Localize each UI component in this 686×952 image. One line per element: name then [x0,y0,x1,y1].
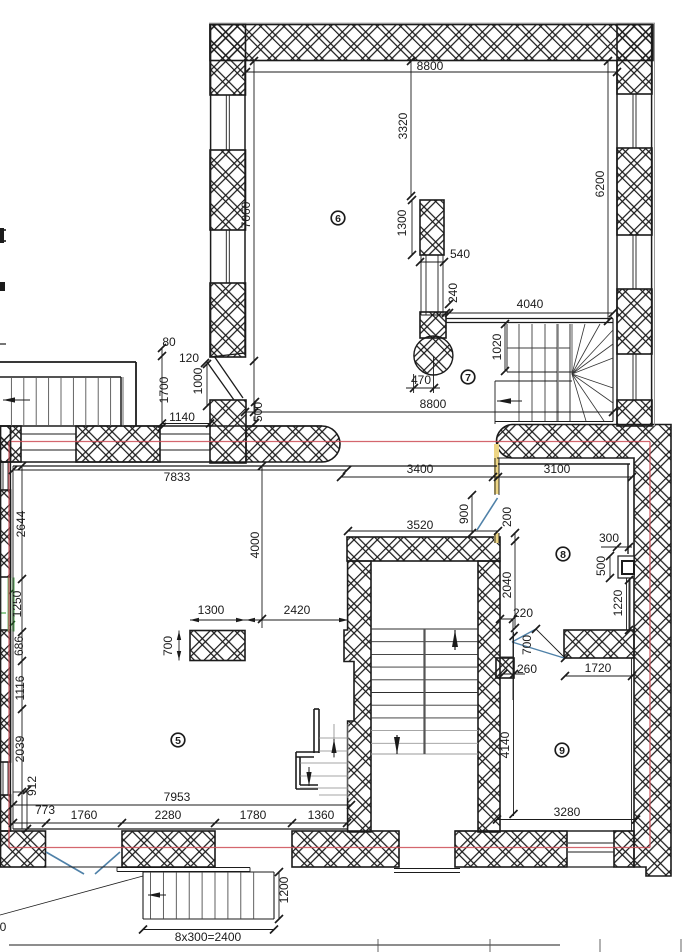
svg-text:2039: 2039 [13,735,27,762]
svg-text:4140: 4140 [498,731,512,758]
svg-text:2420: 2420 [284,603,311,617]
svg-text:9: 9 [559,745,565,757]
svg-text:3280: 3280 [554,805,581,819]
svg-text:2280: 2280 [155,808,182,822]
svg-text:686: 686 [12,636,26,656]
svg-text:1360: 1360 [308,808,335,822]
svg-text:3520: 3520 [407,518,434,532]
svg-text:540: 540 [450,247,470,261]
svg-text:200: 200 [500,507,514,527]
svg-text:470: 470 [411,373,431,387]
svg-text:8x300=2400: 8x300=2400 [175,930,242,944]
svg-text:4000: 4000 [248,531,262,558]
svg-text:1760: 1760 [71,808,98,822]
svg-text:120: 120 [179,351,199,365]
svg-text:6: 6 [335,213,341,225]
svg-text:6200: 6200 [593,170,607,197]
svg-text:1020: 1020 [490,333,504,360]
svg-text:3100: 3100 [544,462,571,476]
svg-text:1250: 1250 [10,590,24,617]
svg-text:220: 220 [513,606,533,620]
svg-text:4040: 4040 [517,297,544,311]
svg-text:2644: 2644 [14,510,28,537]
svg-text:7: 7 [465,372,471,384]
svg-text:300: 300 [599,531,619,545]
svg-text:773: 773 [35,803,55,817]
svg-text:8: 8 [560,549,566,561]
svg-text:7953: 7953 [164,790,191,804]
svg-text:5: 5 [175,735,181,747]
svg-text:8800: 8800 [420,397,447,411]
svg-text:1000: 1000 [191,367,205,394]
svg-text:912: 912 [25,776,39,796]
svg-text:7060: 7060 [239,201,253,228]
svg-text:2040: 2040 [500,571,514,598]
svg-text:7833: 7833 [164,470,191,484]
svg-text:1116: 1116 [13,675,27,700]
svg-text:1720: 1720 [585,661,612,675]
svg-text:8800: 8800 [417,59,444,73]
svg-text:1780: 1780 [240,808,267,822]
svg-text:1220: 1220 [611,589,625,616]
svg-text:0: 0 [0,920,7,934]
svg-text:900: 900 [457,504,471,524]
svg-text:260: 260 [517,662,537,676]
svg-text:3400: 3400 [407,462,434,476]
svg-text:80: 80 [162,335,176,349]
svg-text:3320: 3320 [396,112,410,139]
svg-text:1300: 1300 [198,603,225,617]
svg-text:1140: 1140 [169,410,195,424]
svg-text:700: 700 [161,636,175,656]
svg-text:1300: 1300 [395,209,409,236]
svg-text:1200: 1200 [277,876,291,903]
svg-text:1700: 1700 [157,376,171,403]
svg-text:240: 240 [446,283,460,303]
svg-text:500: 500 [594,556,608,576]
svg-text:500: 500 [251,402,265,422]
svg-text:700: 700 [520,635,534,655]
